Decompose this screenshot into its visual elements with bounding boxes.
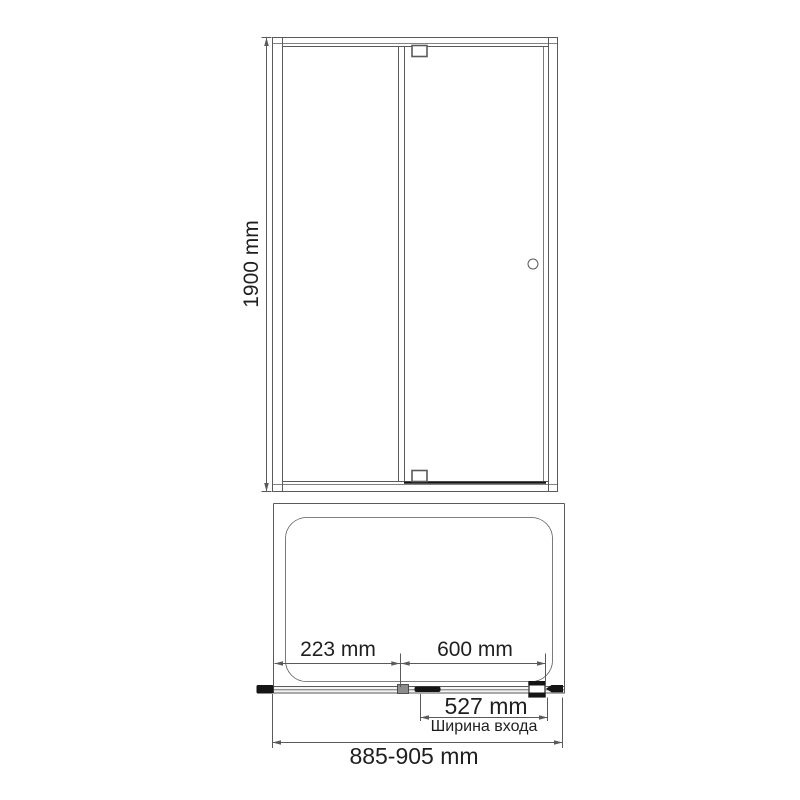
entry-width-label: 527 mm <box>421 694 551 718</box>
height-dim-arrow-up <box>264 38 269 47</box>
wall-bracket-left <box>257 685 274 694</box>
dim-600-arrow-right <box>537 661 546 665</box>
door-width-label: 600 mm <box>420 639 530 661</box>
overall-width-label: 885-905 mm <box>329 744 499 768</box>
door-handle-plan <box>415 687 441 693</box>
shower-door-technical-drawing: 1900 mm 223 mm 600 mm 527 mm Ширина вход… <box>0 0 800 800</box>
dim-223-arrow-right <box>391 661 400 665</box>
height-dimension-label: 1900 mm <box>241 209 263 319</box>
front-view <box>273 38 558 492</box>
height-dim-arrow-down <box>264 483 269 492</box>
dim-600-arrow-left <box>401 661 410 665</box>
dim-overall-arrow-left <box>273 740 282 744</box>
plan-view <box>257 504 565 698</box>
top-hinge-bracket <box>412 46 427 57</box>
pivot-hinge-top-cap <box>529 681 546 686</box>
front-frame-outline <box>273 38 558 492</box>
dim-overall-arrow-right <box>554 740 563 744</box>
dim-223-arrow-left <box>275 661 284 665</box>
entry-width-caption: Ширина входа <box>409 719 559 736</box>
door-knob <box>528 259 538 269</box>
panel-connector <box>398 685 409 694</box>
bottom-hinge-bracket <box>412 471 427 482</box>
fixed-panel-width-label: 223 mm <box>283 639 393 661</box>
drawing-canvas <box>0 0 800 800</box>
